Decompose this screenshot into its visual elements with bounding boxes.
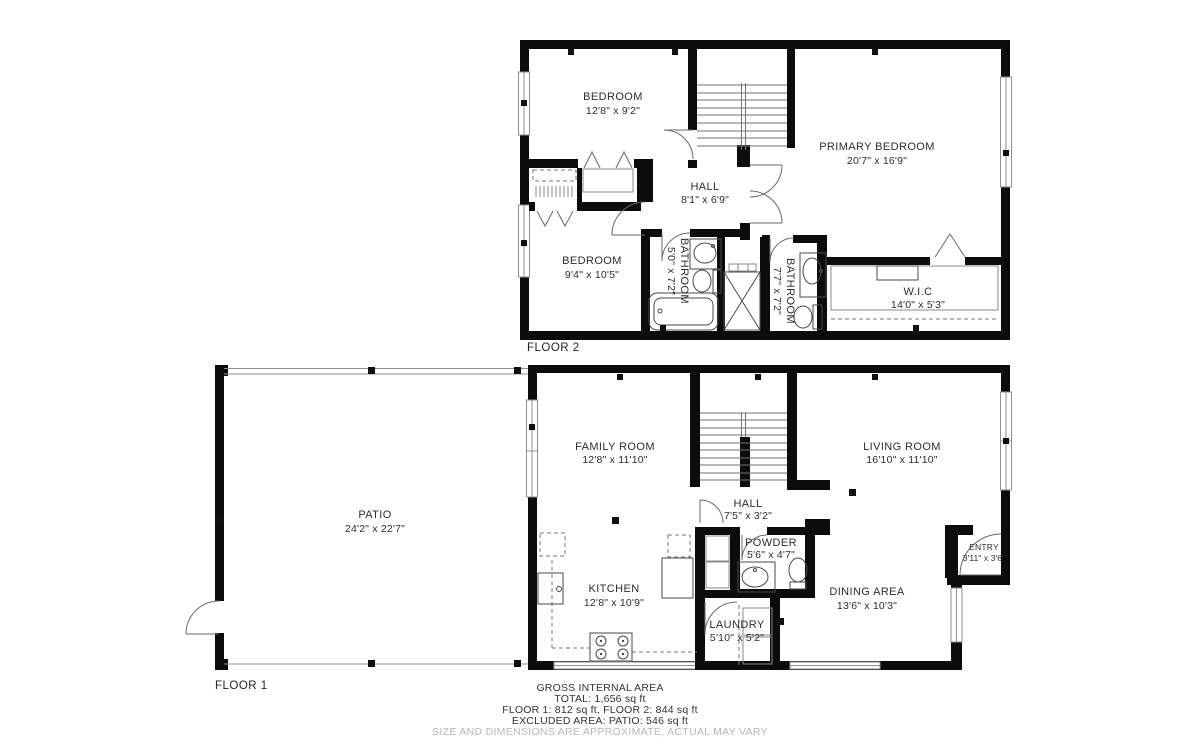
room-dims-kitchen: 12'8" x 10'9": [584, 597, 644, 609]
kitchen-sink-icon: [538, 573, 563, 604]
room-dims-laundry: 5'10" x 5'2": [710, 632, 764, 644]
floor2-stairs-icon: [697, 83, 787, 150]
room-dims-wic: 14'0" x 5'3": [891, 299, 945, 311]
fridge-icon: [662, 558, 693, 598]
room-dims-bedroom-left: 9'4" x 10'5": [565, 269, 619, 281]
room-dims-hall1: 7'5" x 3'2": [724, 510, 772, 522]
room-label-laundry: LAUNDRY: [709, 619, 764, 631]
floor-plan-page: BEDROOM 12'8" x 9'2" PRIMARY BEDROOM 20'…: [0, 0, 1200, 750]
floor2-shower-icon: [724, 264, 760, 330]
room-dims-powder: 5'6" x 4'7": [747, 549, 795, 561]
room-dims-patio: 24'2" x 22'7": [345, 523, 405, 535]
room-label-patio: PATIO: [358, 509, 391, 521]
floor2-label: FLOOR 2: [527, 342, 580, 354]
room-label-primary-bedroom: PRIMARY BEDROOM: [819, 141, 935, 153]
room-label-kitchen: KITCHEN: [588, 583, 639, 595]
room-label-bathroom-2: BATHROOM: [784, 258, 796, 324]
room-label-dining-area: DINING AREA: [829, 586, 905, 598]
room-label-hall2: HALL: [690, 181, 719, 193]
room-dims-hall2: 8'1" x 6'9": [681, 194, 729, 206]
room-dims-entry: 3'11" x 3'6": [963, 553, 1005, 563]
room-label-wic: W.I.C: [904, 286, 933, 298]
room-dims-living-room: 16'10" x 11'10": [866, 454, 938, 466]
floor1-plan: PATIO 24'2" x 22'7" FAMILY ROOM 12'8" x …: [186, 365, 1012, 692]
floor1-label: FLOOR 1: [215, 680, 268, 692]
powder-fixtures: [738, 558, 807, 592]
patio-boundary: [186, 365, 528, 670]
floor1-room-labels: PATIO 24'2" x 22'7" FAMILY ROOM 12'8" x …: [345, 441, 1005, 644]
room-dims-dining-area: 13'6" x 10'3": [837, 600, 897, 612]
footer-disclaimer: SIZE AND DIMENSIONS ARE APPROXIMATE, ACT…: [432, 726, 768, 738]
stove-icon: [590, 633, 632, 661]
room-label-bedroom-left: BEDROOM: [562, 255, 622, 267]
footer-summary: GROSS INTERNAL AREA TOTAL: 1,656 sq ft F…: [432, 682, 768, 738]
pantry-closet-details: [706, 536, 729, 588]
room-label-hall1: HALL: [733, 498, 762, 510]
room-dims-bedroom-top: 12'8" x 9'2": [586, 105, 640, 117]
room-dims-bathroom-2: 7'7" x 7'2": [771, 267, 783, 315]
room-label-bathroom-1: BATHROOM: [678, 238, 690, 304]
patio-gate-door: [186, 601, 219, 634]
room-label-bedroom-top: BEDROOM: [583, 91, 643, 103]
room-label-living-room: LIVING ROOM: [863, 441, 941, 453]
room-dims-primary-bedroom: 20'7" x 16'9": [847, 155, 907, 167]
floor2-plan: BEDROOM 12'8" x 9'2" PRIMARY BEDROOM 20'…: [519, 40, 1012, 354]
room-dims-bathroom-1: 5'0" x 7'2": [665, 247, 677, 295]
room-dims-family-room: 12'8" x 11'10": [582, 454, 648, 466]
powder-toilet-icon: [789, 558, 807, 582]
room-label-powder: POWDER: [745, 537, 797, 549]
floor-plan-drawing: BEDROOM 12'8" x 9'2" PRIMARY BEDROOM 20'…: [0, 0, 1200, 750]
room-label-entry: ENTRY: [969, 542, 999, 552]
room-label-family-room: FAMILY ROOM: [575, 441, 655, 453]
